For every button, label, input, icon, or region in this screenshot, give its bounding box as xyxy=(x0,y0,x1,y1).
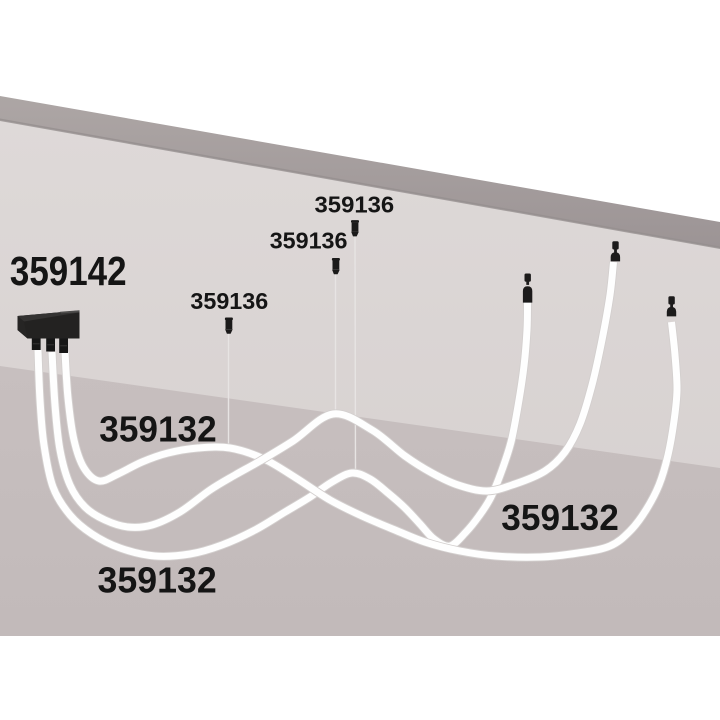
svg-text:359136: 359136 xyxy=(315,191,395,217)
svg-text:359132: 359132 xyxy=(98,560,217,601)
svg-text:359142: 359142 xyxy=(10,248,127,294)
svg-text:359136: 359136 xyxy=(270,227,348,253)
svg-text:359136: 359136 xyxy=(190,288,268,314)
svg-text:359132: 359132 xyxy=(501,497,619,538)
svg-text:359132: 359132 xyxy=(99,409,216,450)
